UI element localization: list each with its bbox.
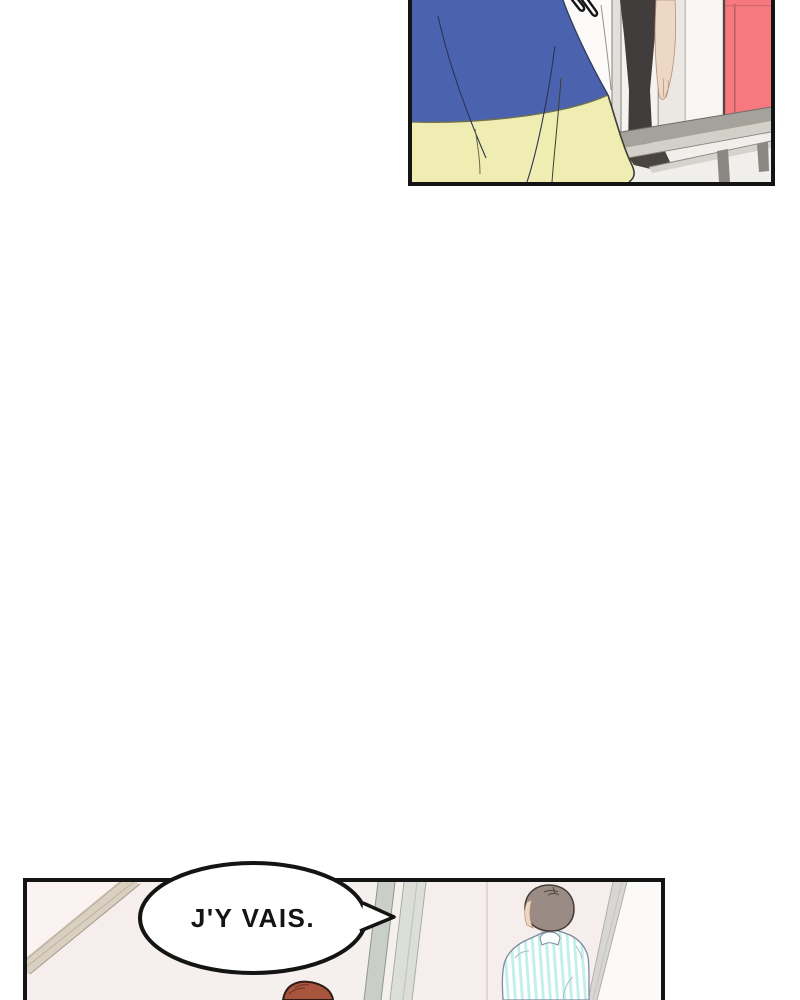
bubble-tail — [360, 903, 394, 931]
red-door-top-line — [725, 5, 771, 6]
collar — [540, 932, 560, 945]
gray-hair — [525, 885, 574, 931]
table-leg — [717, 149, 730, 182]
comic-page: J'Y VAIS. — [0, 0, 800, 1000]
table-leg-right — [757, 142, 769, 172]
speech-bubble: J'Y VAIS. — [138, 856, 406, 980]
panel-top-art — [412, 0, 771, 182]
bubble-text: J'Y VAIS. — [191, 903, 315, 933]
panel-top — [408, 0, 775, 186]
